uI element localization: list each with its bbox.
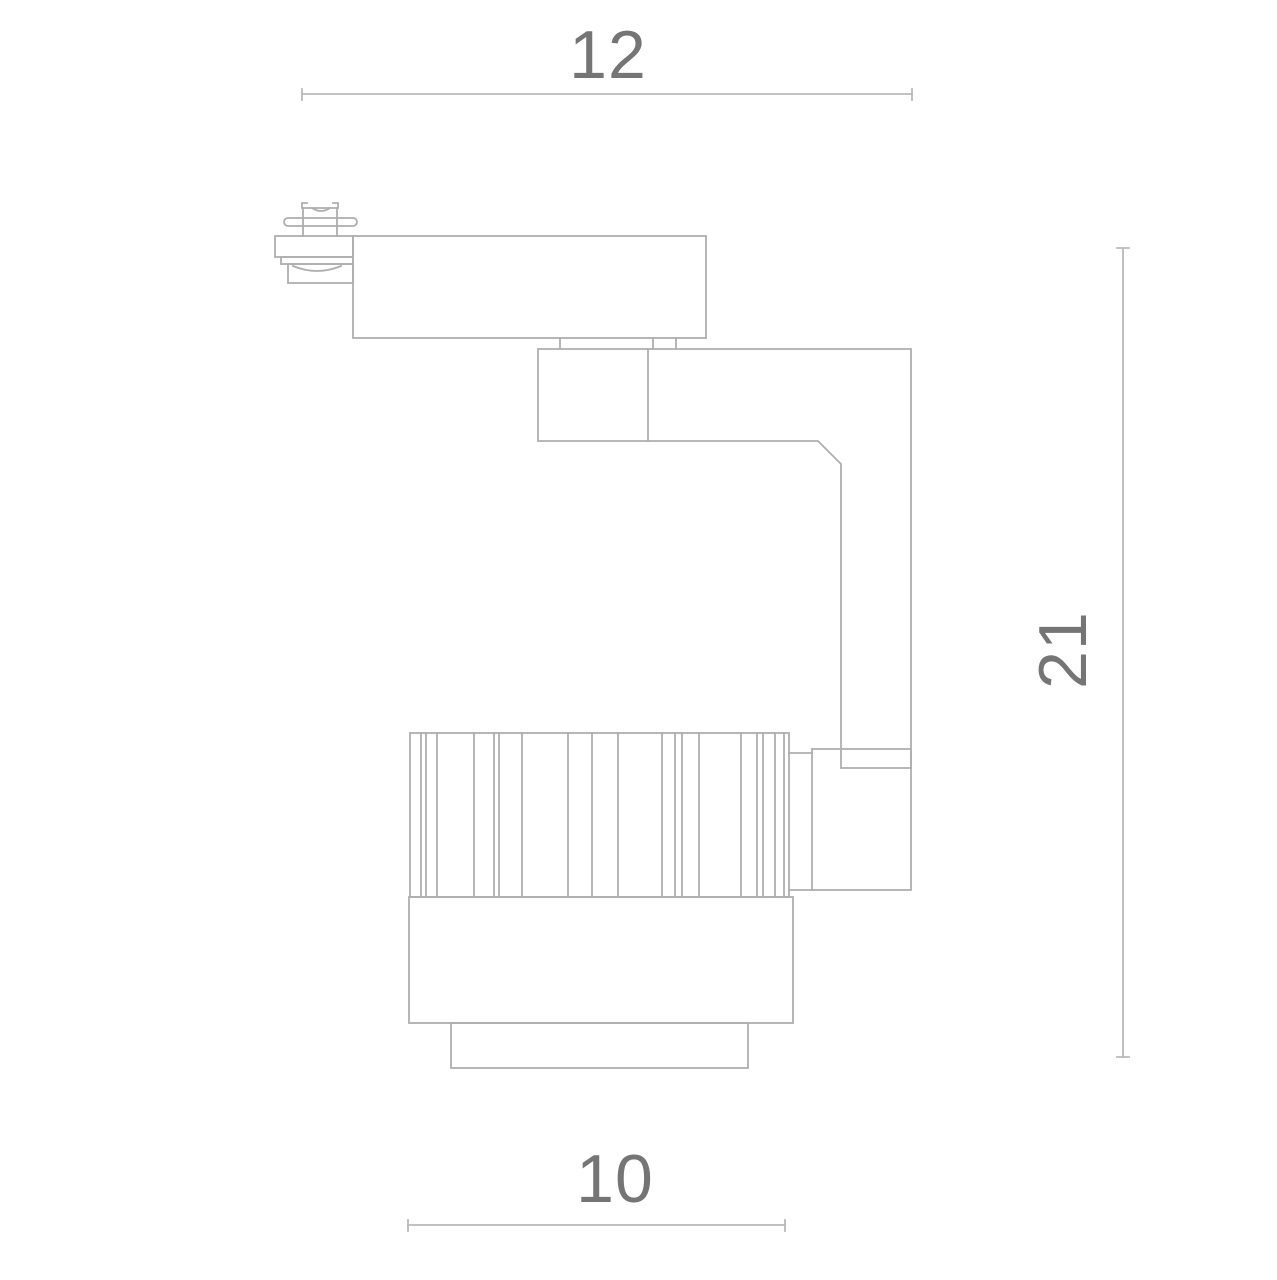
dimension-right-height xyxy=(1117,248,1129,1057)
lamp-lower-body xyxy=(409,897,793,1023)
gearbox-housing xyxy=(353,236,706,338)
lamp-front-bezel xyxy=(451,1023,748,1068)
technical-drawing-canvas: 12 21 10 xyxy=(0,0,1277,1280)
heatsink-fins xyxy=(421,733,784,897)
adapter-upper-housing xyxy=(275,236,353,257)
dimension-label-bottom-width: 10 xyxy=(576,1141,654,1217)
dimension-label-top-width: 12 xyxy=(569,17,647,93)
adapter-lip xyxy=(281,257,353,264)
dimension-label-right-height: 21 xyxy=(1025,611,1101,689)
fixture-drawing xyxy=(275,203,911,1068)
adapter-pin-cap xyxy=(302,203,338,208)
stem-arm-outline xyxy=(538,349,911,768)
knuckle-joint xyxy=(812,749,911,890)
heatsink-body xyxy=(410,733,789,897)
drawing-container: 12 21 10 xyxy=(0,0,1277,1280)
adapter-flange xyxy=(284,218,357,226)
dimension-labels: 12 21 10 xyxy=(569,17,1101,1217)
dimension-bottom-width xyxy=(408,1220,785,1231)
adapter-lens-arc xyxy=(293,266,341,271)
adapter-pin-posts xyxy=(303,208,337,236)
swivel-joint-connectors xyxy=(560,338,676,349)
knuckle-connector-lines xyxy=(789,753,812,890)
dimension-lines xyxy=(302,89,1129,1231)
track-adapter xyxy=(275,203,357,283)
